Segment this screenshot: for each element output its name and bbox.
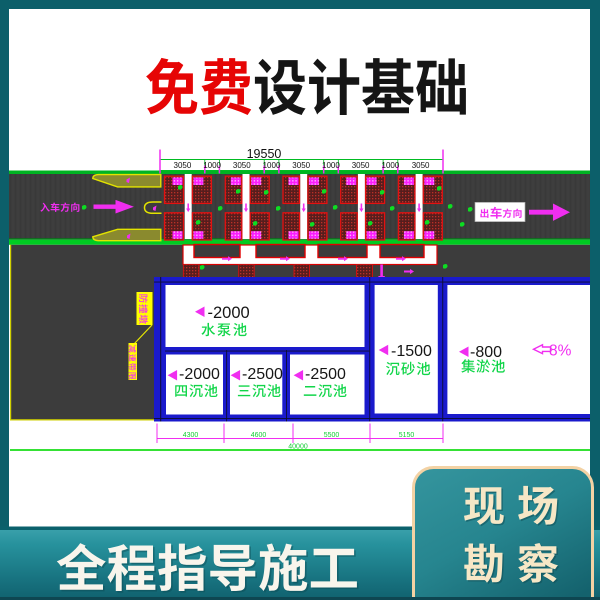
svg-text:4600: 4600: [251, 432, 267, 439]
svg-text:8%: 8%: [549, 343, 572, 360]
svg-text:3050: 3050: [412, 161, 430, 170]
svg-text:19550: 19550: [247, 147, 282, 161]
svg-text:-2500: -2500: [242, 366, 283, 383]
svg-text:1000: 1000: [203, 161, 221, 170]
svg-text:3050: 3050: [352, 161, 370, 170]
svg-text:4300: 4300: [183, 432, 199, 439]
svg-text:5500: 5500: [324, 432, 340, 439]
svg-text:-1500: -1500: [391, 343, 432, 360]
svg-text:3050: 3050: [233, 161, 251, 170]
svg-text:-2000: -2000: [179, 366, 220, 383]
svg-text:40000: 40000: [288, 444, 308, 451]
svg-text:-2500: -2500: [305, 366, 346, 383]
svg-text:5150: 5150: [399, 432, 415, 439]
svg-text:3050: 3050: [174, 161, 192, 170]
svg-text:3050: 3050: [292, 161, 310, 170]
svg-text:-800: -800: [470, 344, 502, 361]
svg-text:1000: 1000: [263, 161, 281, 170]
svg-text:1000: 1000: [382, 161, 400, 170]
svg-text:-2000: -2000: [208, 304, 250, 322]
svg-text:1000: 1000: [322, 161, 340, 170]
